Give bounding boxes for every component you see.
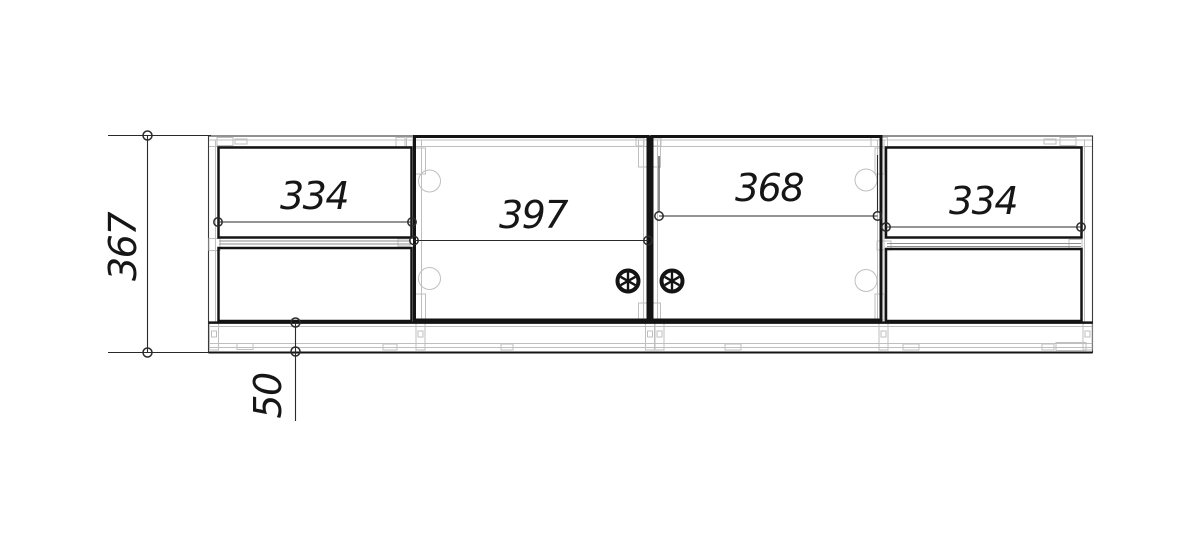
knob-right-icon [662, 271, 683, 292]
dim-left-door-width: 397 [410, 193, 652, 245]
hinge-cup-icon [855, 169, 877, 191]
drawer-front-bottom-left [219, 248, 412, 321]
drawer-front-bottom-right [886, 249, 1082, 321]
dim-368-label: 368 [735, 166, 803, 210]
dim-overall-height: 367 [101, 131, 211, 357]
plinth-connectors [210, 323, 1093, 350]
cad-canvas: 367 50 334 397 368 334 [0, 0, 1200, 554]
dim-right-drawers-width: 334 [882, 179, 1085, 231]
dim-397-label: 397 [499, 193, 568, 237]
hinge-cup-icon [855, 270, 877, 292]
knob-left-icon [618, 271, 639, 292]
dim-334-left-label: 334 [280, 174, 348, 218]
dim-right-door-width: 368 [655, 155, 882, 220]
dim-left-drawers-width: 334 [214, 174, 416, 226]
dim-367-label: 367 [101, 212, 145, 281]
dim-334-right-label: 334 [949, 179, 1017, 223]
dim-plinth-height: 50 [246, 318, 300, 421]
right-door [652, 137, 881, 321]
drawing-page: 367 50 334 397 368 334 [0, 0, 1200, 554]
right-drawer-stack [886, 148, 1082, 322]
dim-50-label: 50 [246, 373, 290, 419]
